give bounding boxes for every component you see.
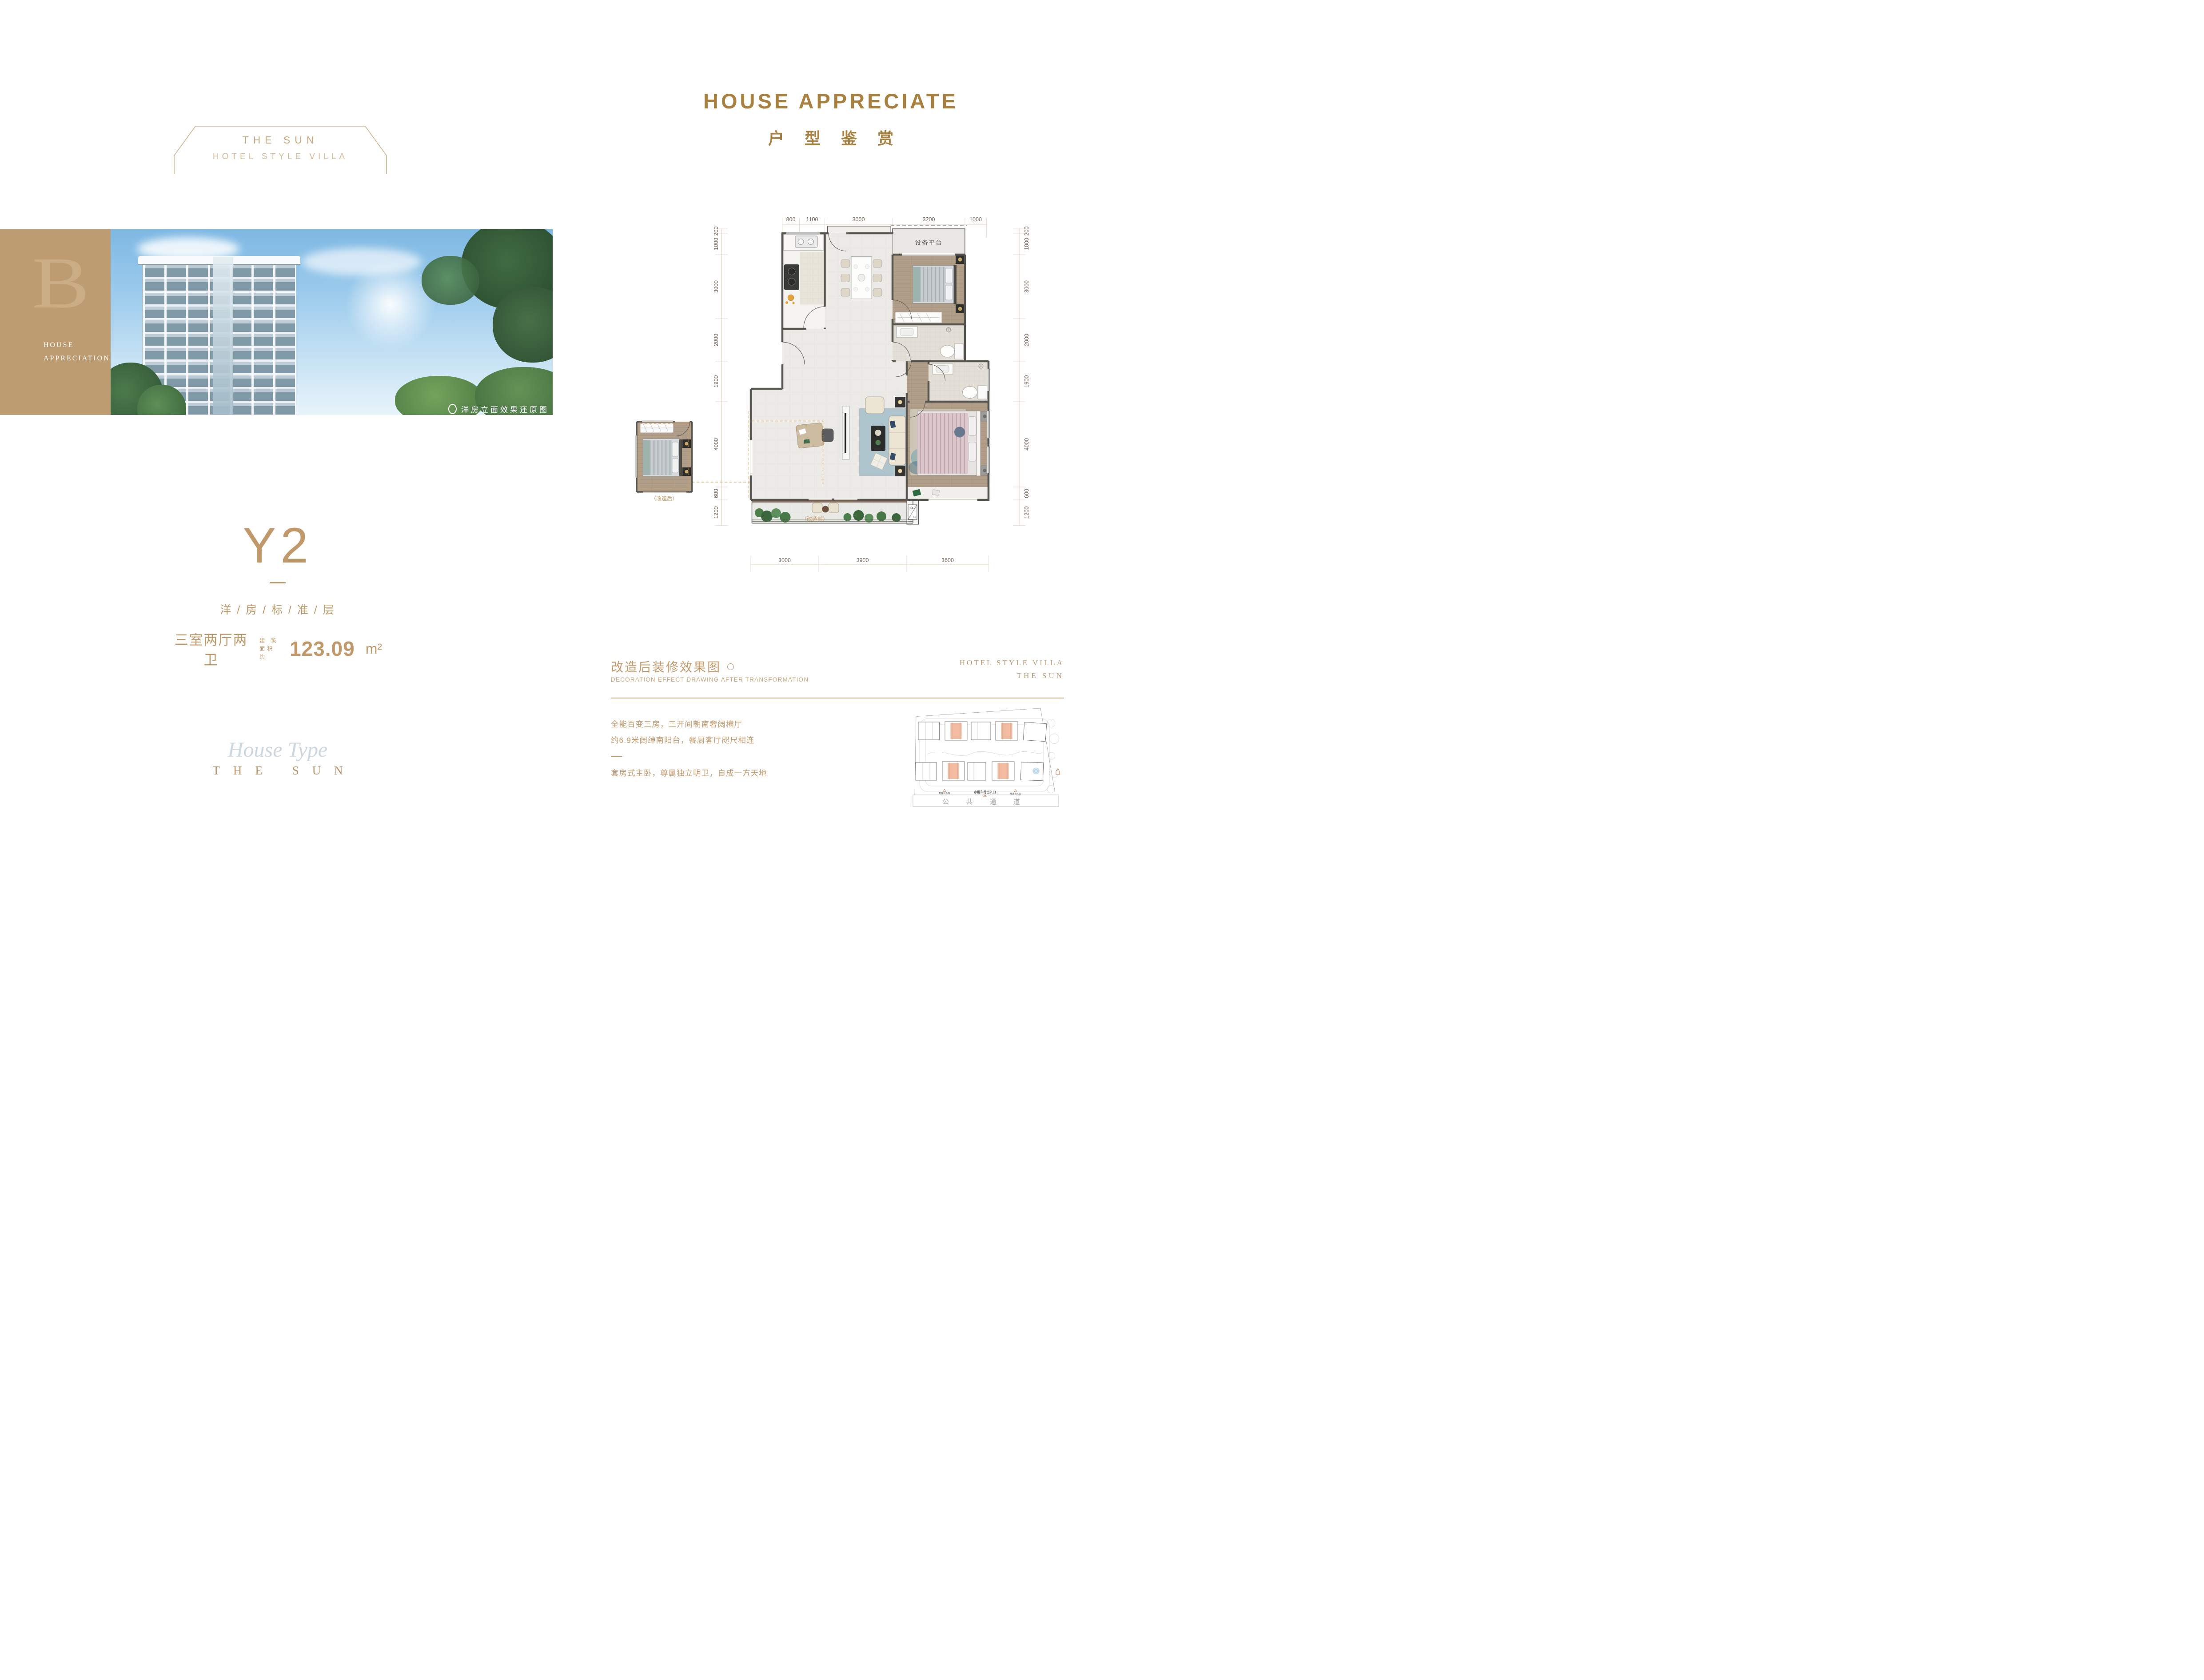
site-plan-drawing: 公 共 通 道 小区车行出入口 地库出入口 地库出入口 <box>912 704 1063 809</box>
b-monogram-logo: B <box>32 246 90 319</box>
description-line2: 约6.9米阔绰南阳台，餐厨客厅咫尺相连 <box>611 732 767 748</box>
svg-text:1200: 1200 <box>713 507 719 519</box>
floor-plan-drawing: 800 1100 3000 3200 1000 3000 3900 3600 2… <box>622 200 1040 578</box>
dining-furniture <box>841 257 882 299</box>
svg-text:3000: 3000 <box>778 557 791 563</box>
unit-spec-row: 三室两厅两卫 建 筑 面积约 123.09 m² <box>173 629 382 669</box>
unit-rooms: 三室两厅两卫 <box>173 629 249 669</box>
area-label-line1: 建 筑 <box>259 638 278 644</box>
svg-text:4000: 4000 <box>1024 438 1030 451</box>
area-label: 建 筑 面积约 <box>259 637 279 661</box>
project-badge: THE SUN HOTEL STYLE VILLA <box>169 120 392 178</box>
side-brand-block: B HOUSE APPRECIATION <box>0 229 111 415</box>
ac-platform: 2A C <box>908 505 917 519</box>
svg-text:200: 200 <box>713 227 719 236</box>
brand-right: HOTEL STYLE VILLA THE SUN <box>877 658 1064 680</box>
house-type-mark: House Type THE SUN <box>173 738 382 778</box>
description-dash <box>611 756 622 757</box>
page-title-cn: 户 型 鉴 赏 <box>693 126 968 149</box>
page-title-en: HOUSE APPRECIATE <box>693 89 968 113</box>
circle-icon <box>448 404 457 414</box>
area-label-line2: 面积约 <box>259 646 275 660</box>
divider-line <box>611 698 1064 698</box>
svg-text:600: 600 <box>713 489 719 498</box>
floor-plan: 800 1100 3000 3200 1000 3000 3900 3600 2… <box>622 200 1040 578</box>
svg-text:C: C <box>913 515 916 519</box>
description-line1: 全能百变三房，三开间朝南奢阔横厅 <box>611 716 767 732</box>
description-line3: 套房式主卧，尊属独立明卫，自成一方天地 <box>611 765 767 781</box>
dim-labels-top: 800 1100 3000 3200 1000 <box>786 216 982 223</box>
entrance-label: 小区车行出入口 <box>974 790 996 794</box>
badge-title: THE SUN <box>169 134 392 146</box>
garage-entrance-right-label: 地库出入口 <box>1010 792 1021 795</box>
svg-text:200: 200 <box>1024 227 1030 236</box>
unit-info: Y2 洋 / 房 / 标 / 准 / 层 三室两厅两卫 建 筑 面积约 123.… <box>173 521 382 669</box>
svg-text:2A: 2A <box>909 506 913 510</box>
script-text: House Type <box>173 738 382 762</box>
brand-right-line2: THE SUN <box>877 671 1064 680</box>
svg-text:1000: 1000 <box>969 216 982 223</box>
brand-right-line1: HOTEL STYLE VILLA <box>877 658 1064 667</box>
drawing-note-en: DECORATION EFFECT DRAWING AFTER TRANSFOR… <box>611 676 809 683</box>
side-block-line1: HOUSE <box>44 341 74 349</box>
svg-text:2000: 2000 <box>1024 334 1030 346</box>
svg-text:3900: 3900 <box>857 557 869 563</box>
svg-text:4000: 4000 <box>713 438 719 451</box>
brand-letters: THE SUN <box>173 764 382 778</box>
svg-text:2000: 2000 <box>713 334 719 346</box>
page-title: HOUSE APPRECIATE 户 型 鉴 赏 <box>693 89 968 149</box>
tree-canopy <box>422 256 479 305</box>
svg-text:1900: 1900 <box>1024 375 1030 388</box>
hexagon-outline-icon <box>169 120 392 178</box>
badge-subtitle: HOTEL STYLE VILLA <box>169 152 392 162</box>
side-block-line2: APPRECIATION <box>44 355 110 363</box>
svg-text:1900: 1900 <box>713 375 719 388</box>
dim-labels-bottom: 3000 3900 3600 <box>778 557 954 563</box>
circle-icon <box>727 663 734 670</box>
svg-text:3600: 3600 <box>941 557 954 563</box>
svg-text:1200: 1200 <box>1024 507 1030 519</box>
area-unit: m² <box>366 641 382 657</box>
svg-text:800: 800 <box>786 216 796 223</box>
photo-caption: 洋房立面效果还原图 <box>448 403 549 415</box>
dim-labels-left: 200 1000 3000 2000 1900 4000 600 1200 <box>713 227 719 519</box>
svg-text:3000: 3000 <box>713 280 719 293</box>
drawing-note: 改造后装修效果图 <box>611 658 734 675</box>
dim-labels-right: 200 1000 3000 2000 1900 4000 600 1200 <box>1024 227 1030 519</box>
building-photo: 洋房立面效果还原图 <box>111 229 553 415</box>
svg-text:3200: 3200 <box>923 216 935 223</box>
garage-entrance-left-label: 地库出入口 <box>939 792 950 795</box>
drawing-note-text: 改造后装修效果图 <box>611 658 721 675</box>
svg-text:1000: 1000 <box>1024 238 1030 250</box>
equipment-platform-label: 设备平台 <box>915 239 943 246</box>
unit-category: 洋 / 房 / 标 / 准 / 层 <box>173 601 382 617</box>
svg-text:3000: 3000 <box>1024 280 1030 293</box>
svg-text:600: 600 <box>1024 489 1030 498</box>
public-road-label: 公 共 通 道 <box>942 798 1028 806</box>
photo-caption-text: 洋房立面效果还原图 <box>461 403 549 415</box>
before-transform-label: （改造前） <box>801 515 828 522</box>
after-transform-label: （改造后） <box>651 495 678 502</box>
svg-text:1100: 1100 <box>806 216 818 223</box>
divider-dash <box>270 582 286 583</box>
svg-text:1000: 1000 <box>713 238 719 250</box>
area-value: 123.09 <box>290 637 355 661</box>
description-block: 全能百变三房，三开间朝南奢阔横厅 约6.9米阔绰南阳台，餐厨客厅咫尺相连 套房式… <box>611 716 767 781</box>
site-pond <box>1033 768 1039 774</box>
site-plan: 公 共 通 道 小区车行出入口 地库出入口 地库出入口 <box>912 704 1063 809</box>
svg-text:3000: 3000 <box>853 216 865 223</box>
unit-code: Y2 <box>173 521 382 571</box>
site-buildings <box>916 722 1047 781</box>
brochure-page: THE SUN HOTEL STYLE VILLA B HOUSE APPREC… <box>0 0 1102 840</box>
